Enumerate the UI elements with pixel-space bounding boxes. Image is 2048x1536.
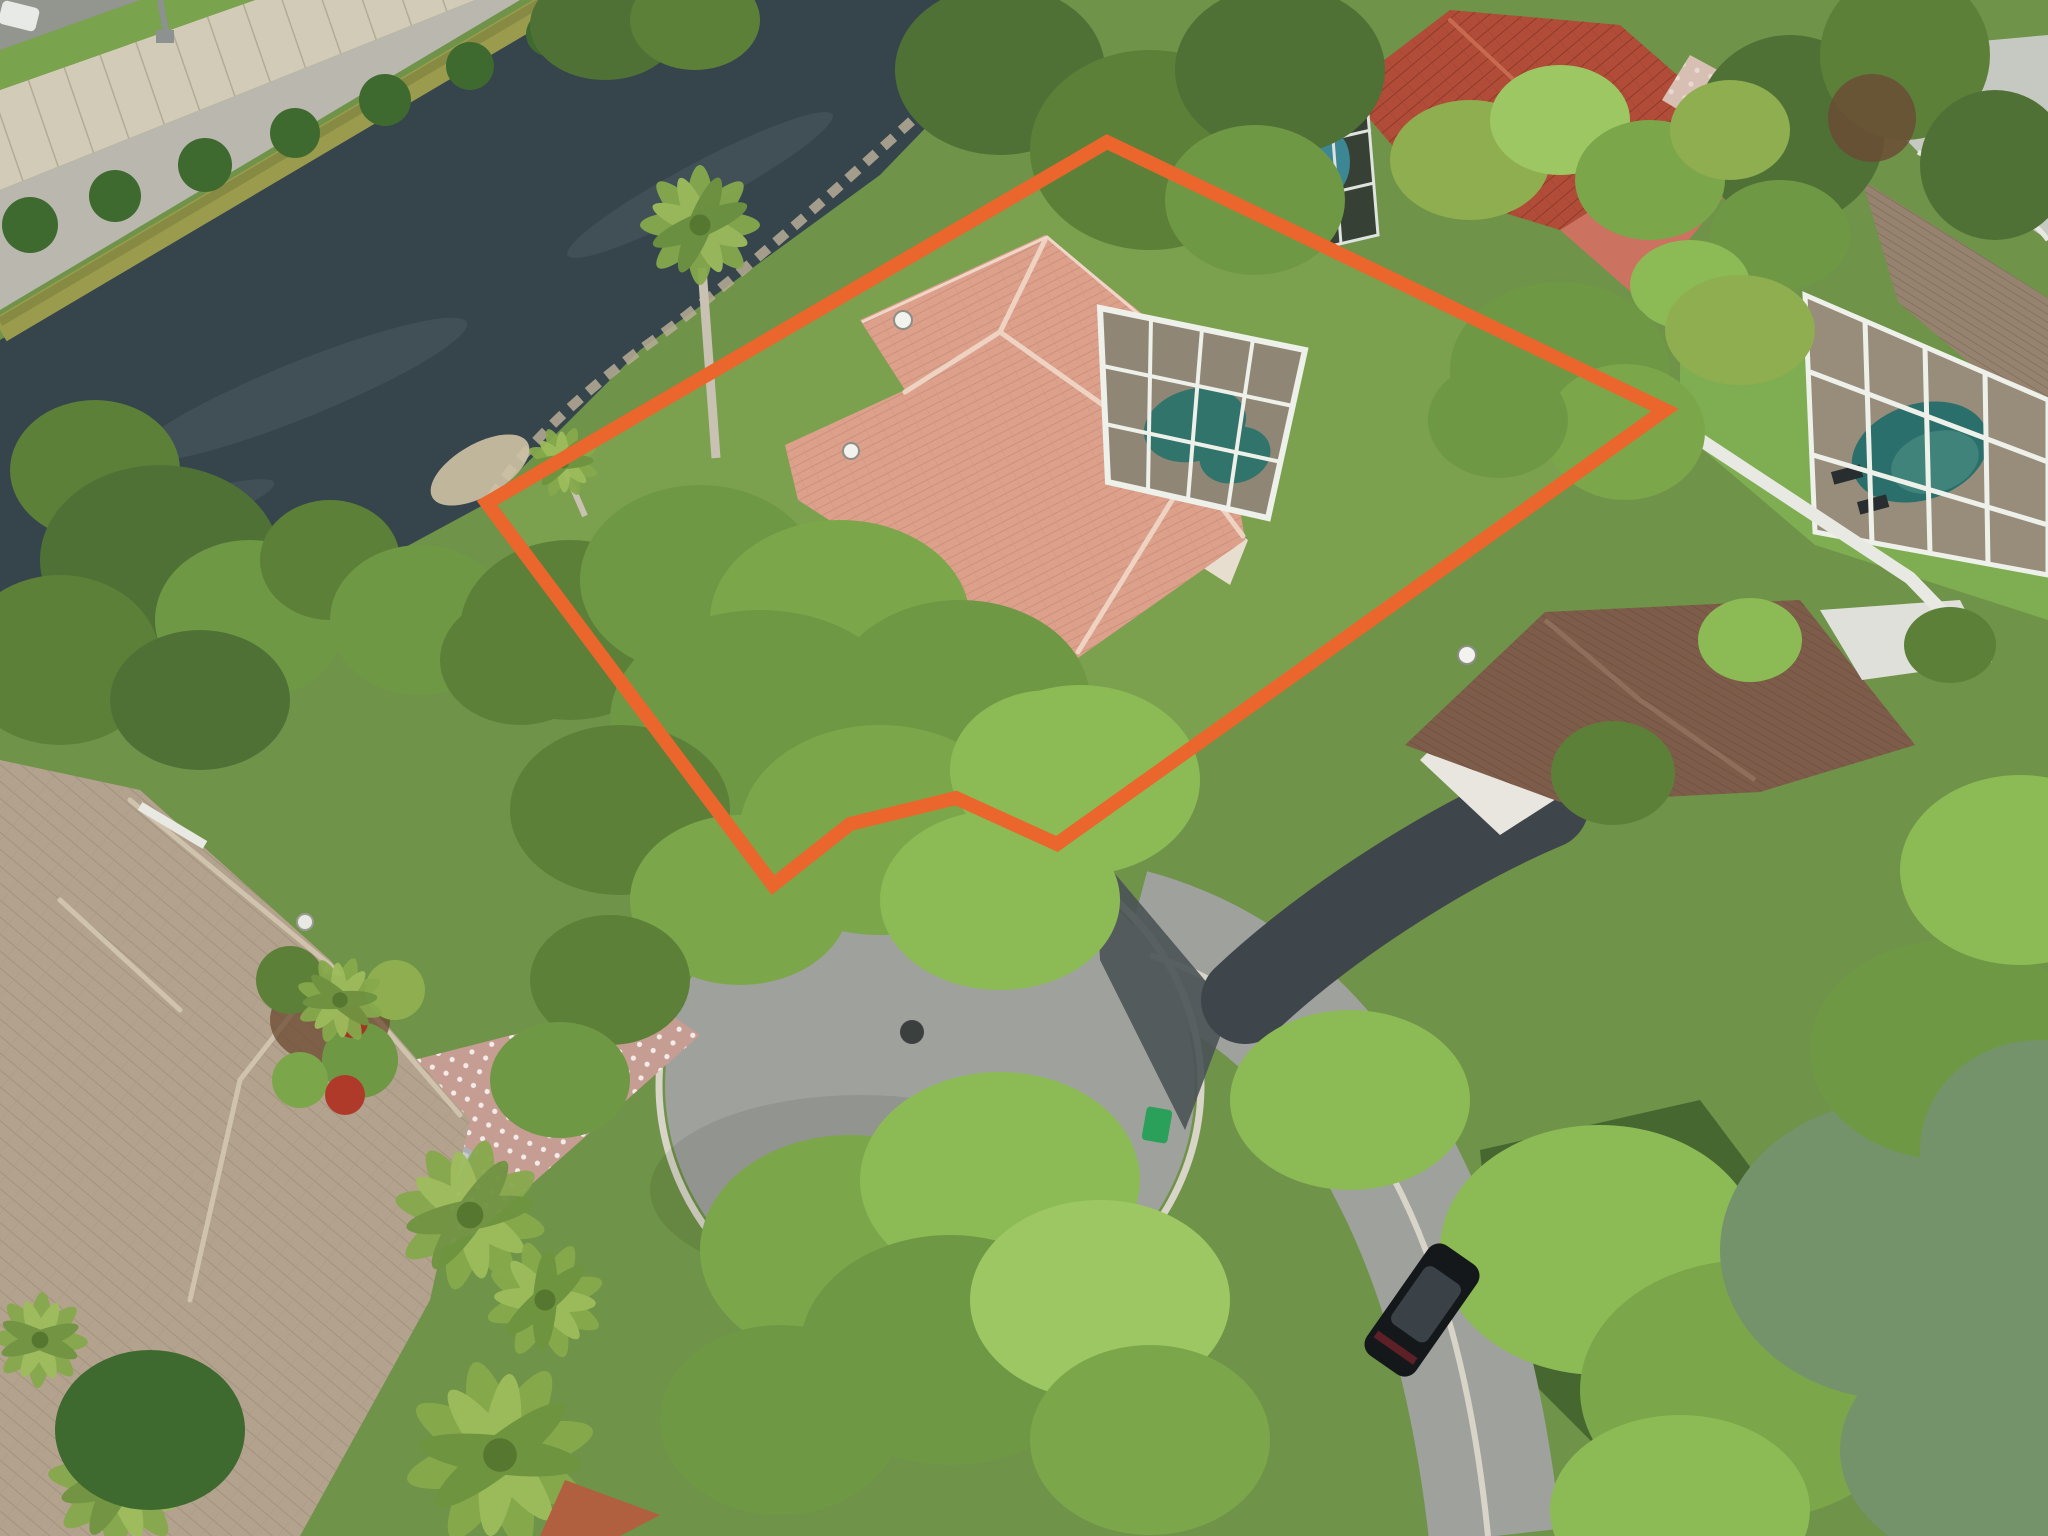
aerial-photo — [0, 0, 2048, 1536]
manhole-cover — [900, 1020, 924, 1044]
satellite-dish-3 — [1458, 646, 1476, 664]
garden-statue — [297, 914, 313, 930]
street-light-base — [156, 30, 174, 43]
satellite-dish-2 — [843, 443, 859, 459]
satellite-dish — [894, 311, 912, 329]
aerial-photo-canvas — [0, 0, 2048, 1536]
